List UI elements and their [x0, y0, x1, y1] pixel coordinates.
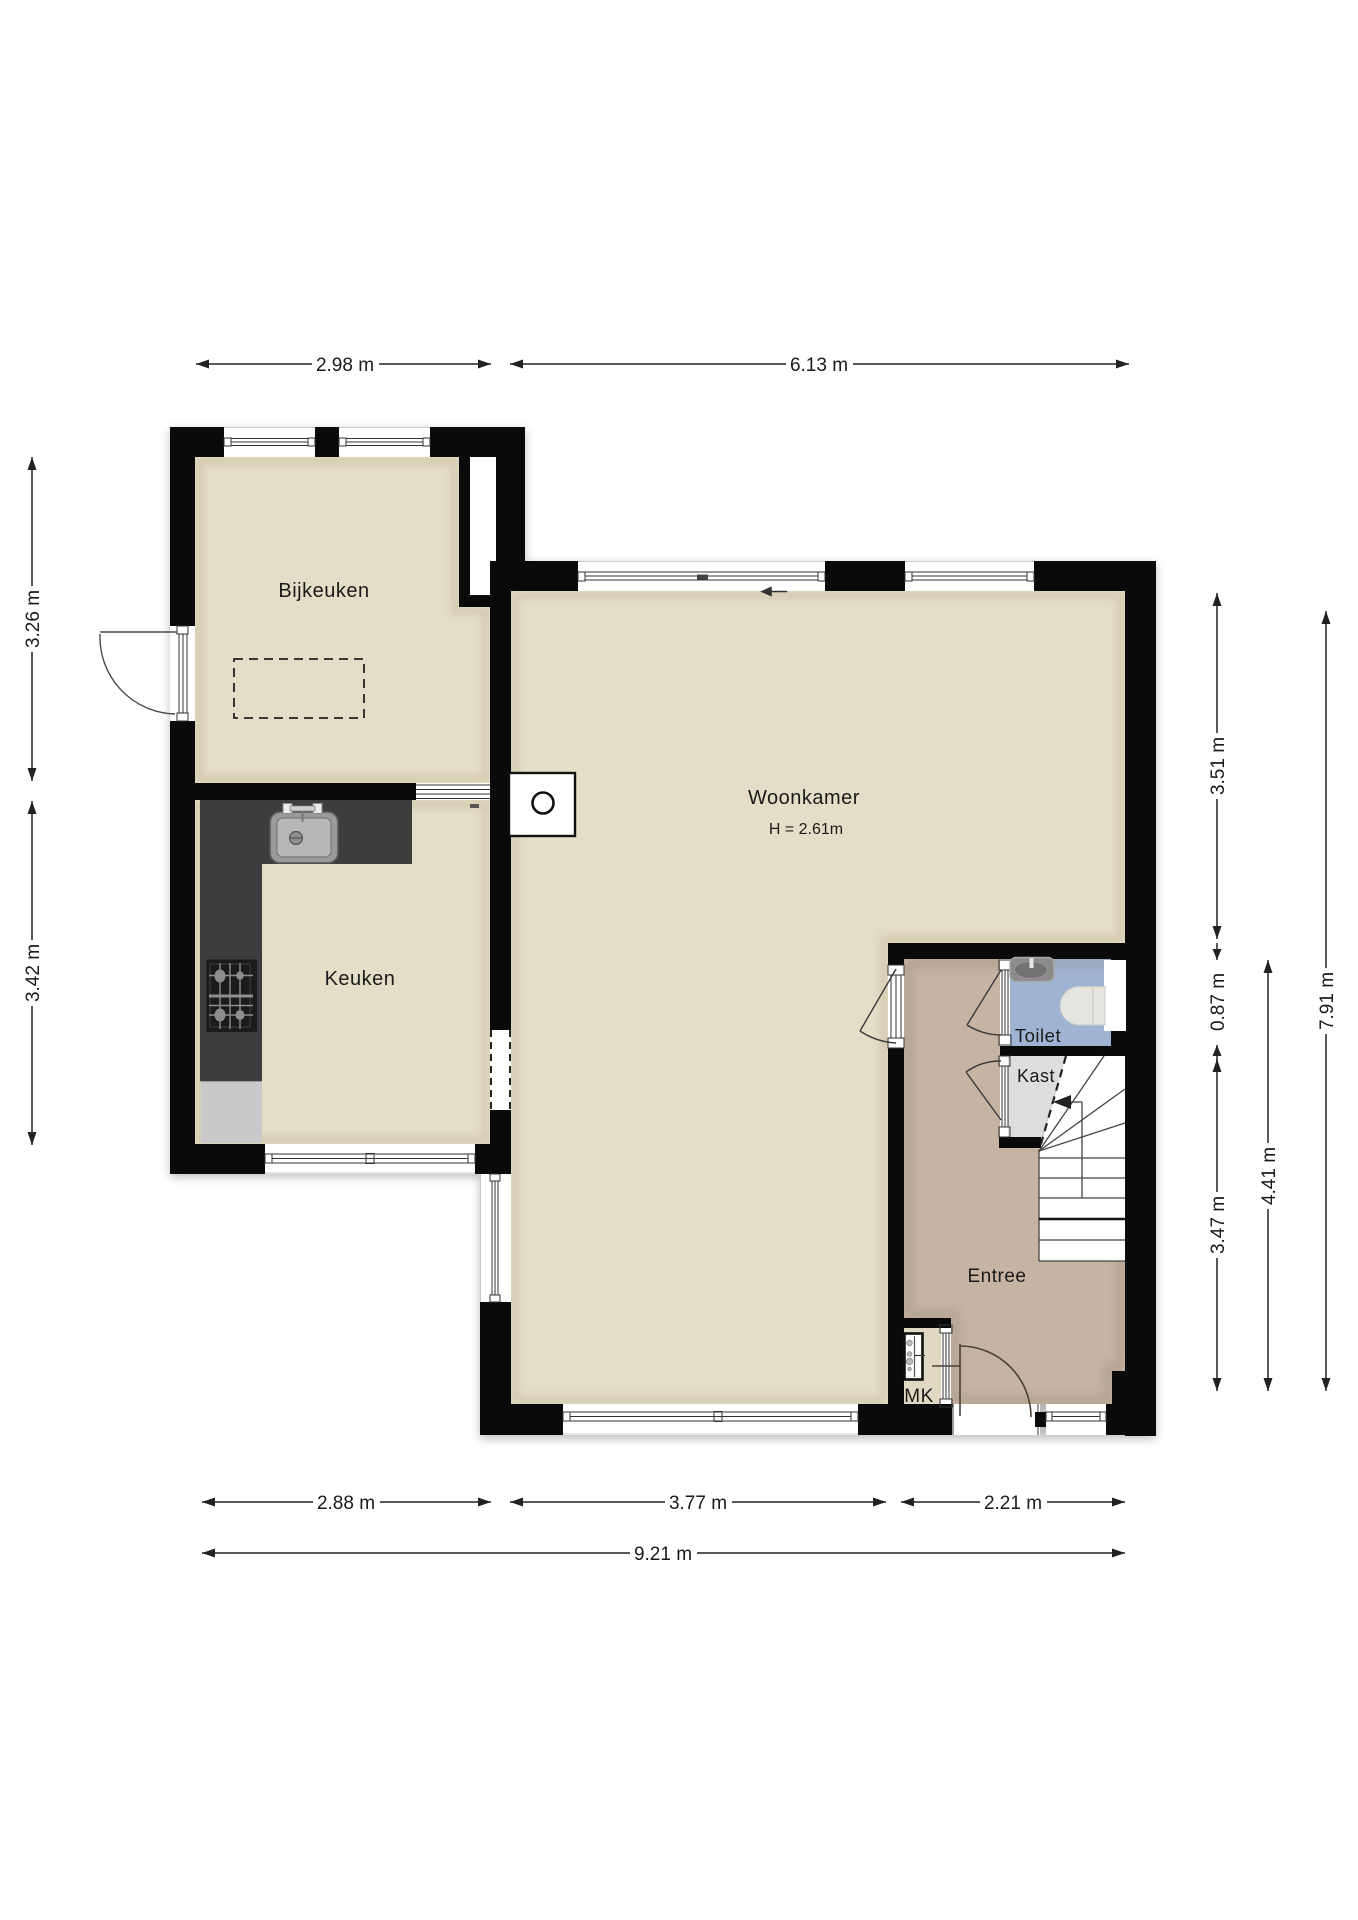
svg-text:9.21 m: 9.21 m: [634, 1544, 692, 1565]
svg-text:0.87 m: 0.87 m: [1208, 973, 1229, 1031]
svg-text:2.21 m: 2.21 m: [984, 1493, 1042, 1514]
svg-text:3.42 m: 3.42 m: [23, 944, 44, 1002]
svg-text:Keuken: Keuken: [325, 968, 396, 990]
svg-text:2.98 m: 2.98 m: [316, 355, 374, 376]
svg-text:MK: MK: [904, 1386, 934, 1407]
svg-text:Entree: Entree: [968, 1266, 1027, 1287]
svg-text:Woonkamer: Woonkamer: [748, 787, 860, 809]
svg-text:3.47 m: 3.47 m: [1208, 1196, 1229, 1254]
svg-text:2.88 m: 2.88 m: [317, 1493, 375, 1514]
svg-text:3.26 m: 3.26 m: [23, 590, 44, 648]
svg-text:3.51 m: 3.51 m: [1208, 737, 1229, 795]
svg-text:Bijkeuken: Bijkeuken: [278, 580, 369, 602]
svg-text:4.41 m: 4.41 m: [1259, 1147, 1280, 1205]
svg-text:Kast: Kast: [1017, 1066, 1055, 1086]
svg-text:Toilet: Toilet: [1015, 1025, 1061, 1046]
svg-text:6.13 m: 6.13 m: [790, 355, 848, 376]
svg-text:3.77 m: 3.77 m: [669, 1493, 727, 1514]
svg-text:7.91 m: 7.91 m: [1317, 972, 1338, 1030]
svg-text:H = 2.61m: H = 2.61m: [769, 821, 843, 838]
